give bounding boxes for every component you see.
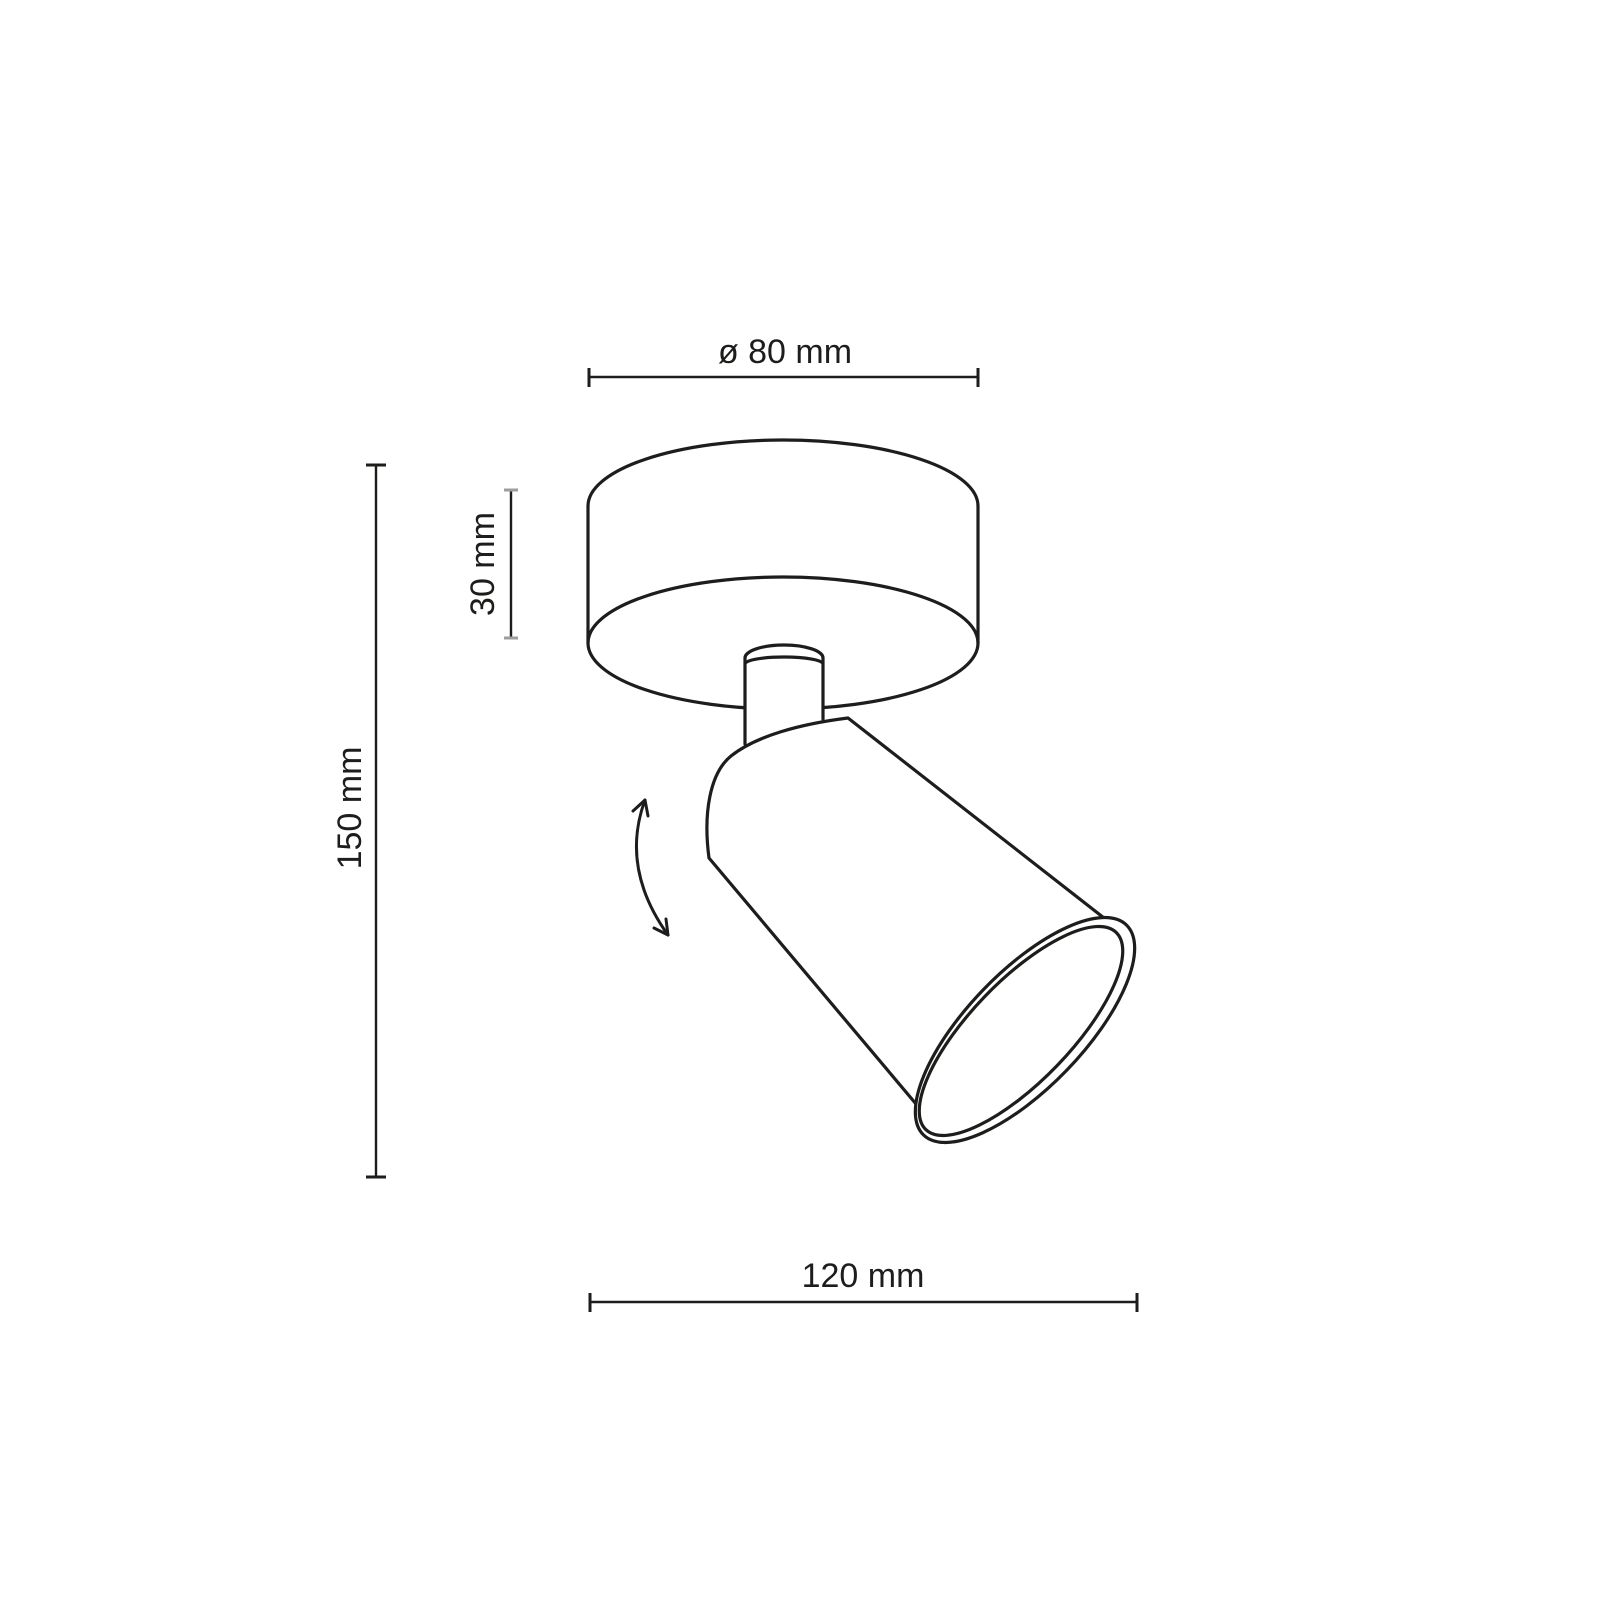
dimension-overall-width: 120 mm [590, 1257, 1137, 1312]
overall-width-label: 120 mm [802, 1257, 925, 1295]
dimension-canopy-height: 30 mm [464, 490, 518, 638]
spotlight-head [707, 718, 1168, 1175]
spotlight-drawing: ø 80 mm 30 mm 150 mm 120 mm [0, 0, 1600, 1600]
dimension-overall-height: 150 mm [331, 465, 386, 1177]
diameter-label: ø 80 mm [718, 333, 852, 371]
rotation-arrow-arc [636, 800, 668, 935]
overall-height-label: 150 mm [331, 747, 369, 870]
dimension-diameter: ø 80 mm [589, 333, 978, 387]
canopy-height-label: 30 mm [464, 512, 502, 616]
dimension-diagram: ø 80 mm 30 mm 150 mm 120 mm [0, 0, 1600, 1600]
rotation-arrow [633, 800, 668, 935]
canopy-top-arc [588, 440, 978, 506]
